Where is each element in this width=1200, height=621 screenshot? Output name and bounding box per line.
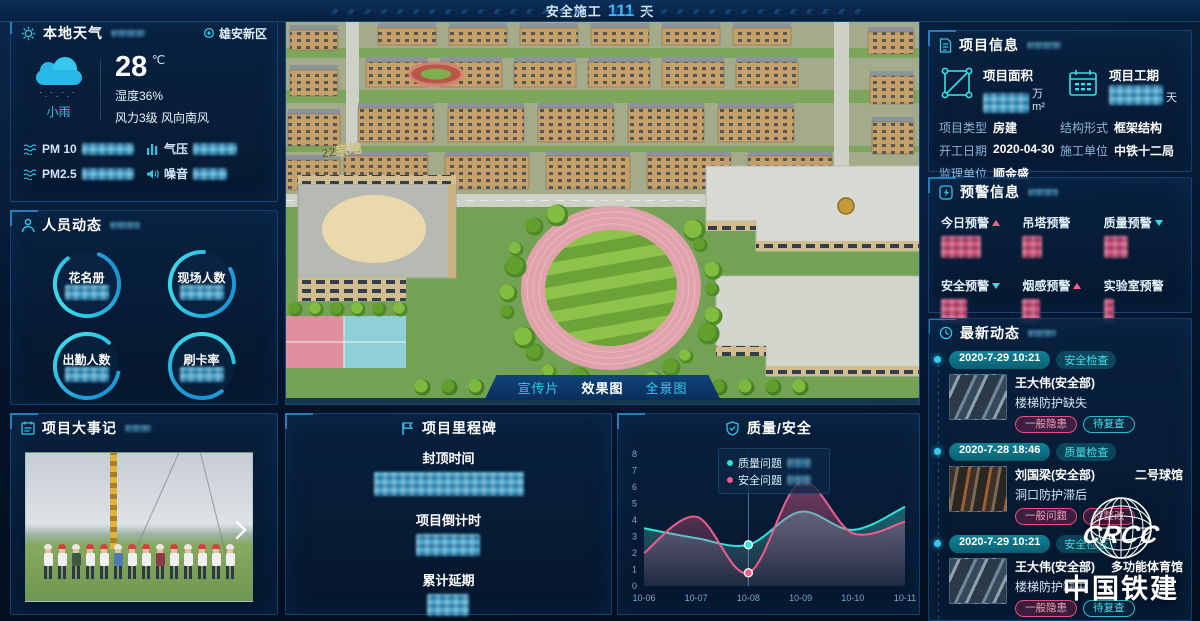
header-blurred-text (1028, 189, 1058, 196)
person-figure (155, 544, 165, 579)
warning-label: 今日预警 (941, 214, 989, 231)
stat-project-duration: 项目工期 天 (1065, 65, 1181, 113)
update-item[interactable]: 2020-7-29 10:21 安全检查 王大伟(安全部) 楼梯防护缺失 一般隐… (949, 351, 1183, 433)
panel-title: 项目里程碑 (422, 418, 497, 438)
svg-text:2: 2 (632, 548, 637, 558)
person-figure (197, 544, 207, 579)
update-site: 二号球馆 (1135, 466, 1183, 483)
update-date: 2020-7-29 10:21 (949, 535, 1050, 553)
metric-label: 噪音 (164, 165, 188, 182)
milestone-photo[interactable] (25, 452, 253, 602)
update-person: 刘国梁(安全部) (1015, 466, 1095, 483)
stat-value-redacted (1109, 85, 1163, 105)
milestone-panel: 项目里程碑 封顶时间 项目倒计时 累计延期 (285, 413, 612, 615)
chart-tooltip: 质量问题 安全问题 (718, 448, 830, 494)
legend-label-safety: 安全问题 (738, 472, 782, 488)
info-project-type: 项目类型 房建 (939, 119, 1060, 136)
promo-video-button[interactable]: 宣传片 (517, 378, 559, 397)
metric-noise: 噪音 (146, 165, 265, 182)
svg-text:3: 3 (632, 532, 637, 542)
warning-label: 烟感预警 (1022, 277, 1070, 294)
warning-today: 今日预警 (941, 214, 1016, 263)
warning-label: 实验室预警 (1104, 277, 1164, 294)
carousel-next-button[interactable] (232, 517, 250, 543)
personnel-ring: 出勤人数 (45, 329, 129, 403)
person-figure (127, 544, 137, 579)
update-tag: 待复查 (1083, 416, 1135, 433)
warning-quality: 质量预警 (1104, 214, 1179, 263)
svg-text:7: 7 (632, 466, 637, 476)
info-label: 结构形式 (1060, 119, 1108, 136)
legend-dot-quality (727, 460, 733, 466)
trend-up-icon (992, 220, 1000, 226)
personnel-ring: 刷卡率 (160, 329, 244, 403)
ring-label: 花名册 (45, 269, 129, 286)
crcc-acronym: CRCC (1080, 521, 1162, 550)
svg-text:10-08: 10-08 (737, 593, 760, 603)
stat-label: 项目面积 (983, 69, 1033, 83)
svg-text:4: 4 (632, 515, 637, 525)
warning-value-redacted (1022, 236, 1042, 258)
legend-dot-safety (727, 477, 733, 483)
metric-pm10: PM 10 (23, 140, 142, 157)
warning-value-redacted (941, 236, 981, 258)
header-blurred-text (110, 222, 140, 229)
panel-title: 本地天气 (43, 23, 103, 43)
warning-label: 安全预警 (941, 277, 989, 294)
trend-down-icon (992, 283, 1000, 289)
ring-label: 现场人数 (160, 269, 244, 286)
milestone-label: 累计延期 (422, 570, 474, 589)
milestone-label: 项目倒计时 (416, 510, 481, 529)
milestone-value-redacted (374, 472, 524, 496)
trend-down-icon (1155, 220, 1163, 226)
project-info-panel: 项目信息 项目面积 万m² (928, 30, 1192, 172)
stat-value-redacted (983, 93, 1029, 113)
person-figure (141, 544, 151, 579)
person-figure (183, 544, 193, 579)
weather-panel: 本地天气 雄安新区 · · · ·· · · 小雨 28 ℃ (10, 18, 278, 202)
area-measure-icon (939, 65, 975, 101)
temperature-unit: ℃ (152, 53, 165, 67)
info-contractor: 施工单位 中铁十二局 (1060, 142, 1181, 159)
person-figure (57, 544, 67, 579)
header-blurred-text (111, 30, 145, 37)
panel-title: 项目信息 (959, 35, 1019, 55)
svg-text:10-09: 10-09 (789, 593, 812, 603)
memo-icon (21, 421, 35, 435)
update-thumbnail (949, 466, 1007, 512)
person-figure (43, 544, 53, 579)
render-view-button[interactable]: 效果图 (581, 378, 623, 397)
view-switcher: 宣传片 效果图 全景图 (484, 375, 720, 400)
warning-label: 吊塔预警 (1022, 214, 1070, 231)
person-icon (21, 218, 35, 233)
update-person: 王大伟(安全部) (1015, 374, 1095, 391)
info-label: 项目类型 (939, 119, 987, 136)
info-value: 中铁十二局 (1114, 142, 1174, 159)
update-date: 2020-7-28 18:46 (949, 443, 1050, 461)
milestone-delay: 累计延期 (422, 570, 474, 621)
info-label: 施工单位 (1060, 142, 1108, 159)
person-figure (85, 544, 95, 579)
rain-cloud-icon (34, 61, 84, 89)
info-start-date: 开工日期 2020-04-30 (939, 142, 1060, 159)
metric-label: PM2.5 (42, 167, 77, 181)
temperature-value: 28 (115, 51, 147, 83)
milestone-value-redacted (427, 594, 469, 616)
tooltip-value-redacted (787, 458, 811, 468)
update-tag: 一般隐患 (1015, 416, 1077, 433)
svg-text:6: 6 (632, 482, 637, 492)
update-thumbnail (949, 374, 1007, 420)
info-label: 开工日期 (939, 142, 987, 159)
crane-cable (132, 452, 182, 558)
metric-value-redacted (193, 143, 237, 155)
group-photo-people (26, 544, 252, 579)
person-figure (169, 544, 179, 579)
document-icon (939, 38, 952, 53)
noise-speaker-icon (146, 168, 159, 180)
panel-title: 质量/安全 (747, 418, 812, 438)
ring-label: 出勤人数 (45, 351, 129, 368)
legend-label-quality: 质量问题 (738, 455, 782, 471)
pressure-icon (146, 143, 159, 155)
rain-drops-icon: · · · ·· · · (23, 91, 94, 99)
aerial-render-view[interactable]: 22宗地 宣传片 效果图 全景图 (285, 15, 920, 405)
alert-lightning-icon (939, 185, 953, 200)
top-header: 安全施工 111 天 (0, 0, 1200, 22)
update-category: 质量检查 (1056, 443, 1116, 461)
crane-mast (110, 453, 117, 549)
pm-icon (23, 143, 37, 155)
warning-label: 质量预警 (1104, 214, 1152, 231)
trend-up-icon (1073, 283, 1081, 289)
info-structure-type: 结构形式 框架结构 (1060, 119, 1181, 136)
panel-title: 项目大事记 (42, 418, 117, 438)
tooltip-value-redacted (787, 475, 811, 485)
person-figure (99, 544, 109, 579)
person-figure (225, 544, 235, 579)
svg-text:8: 8 (632, 449, 637, 459)
panel-title: 预警信息 (960, 182, 1020, 202)
update-issue: 楼梯防护缺失 (1015, 394, 1183, 411)
region-badge: 雄安新区 (203, 25, 267, 42)
svg-text:10-07: 10-07 (685, 593, 708, 603)
clock-icon (939, 326, 953, 340)
crane-cable (196, 452, 226, 555)
info-value: 2020-04-30 (993, 142, 1054, 159)
ring-label: 刷卡率 (160, 351, 244, 368)
sun-icon (21, 26, 36, 41)
header-blurred-text (1028, 330, 1056, 337)
weather-condition: · · · ·· · · 小雨 (23, 59, 101, 120)
ring-value-redacted (65, 285, 109, 300)
svg-text:10-06: 10-06 (632, 593, 655, 603)
location-pin-icon (203, 27, 215, 39)
shield-check-icon (725, 421, 740, 436)
header-decoration (330, 9, 590, 14)
milestone-countdown: 项目倒计时 (416, 510, 481, 561)
condition-label: 小雨 (23, 103, 94, 120)
quality-safety-panel: 质量/安全 01234567810-0610-0710-0810-0910-10… (617, 413, 920, 615)
panel-title: 人员动态 (42, 215, 102, 235)
ring-value-redacted (65, 367, 109, 382)
region-label: 雄安新区 (219, 25, 267, 42)
header-decoration (610, 9, 870, 14)
crcc-logo: CRCC 中国铁建 (1046, 495, 1196, 613)
humidity-text: 湿度36% (115, 87, 209, 104)
metric-value-redacted (193, 168, 227, 180)
weather-current: · · · ·· · · 小雨 28 ℃ 湿度36% 风力3级 风向南风 (11, 47, 277, 130)
person-figure (211, 544, 221, 579)
update-thumbnail (949, 558, 1007, 604)
metric-value-redacted (82, 143, 134, 155)
stat-label: 项目工期 (1109, 69, 1159, 83)
personnel-ring: 花名册 (45, 247, 129, 321)
pm-icon (23, 168, 37, 180)
stat-unit: 天 (1166, 89, 1177, 105)
svg-text:10-10: 10-10 (841, 593, 864, 603)
stat-unit: 万m² (1032, 85, 1055, 113)
ring-value-redacted (180, 367, 224, 382)
wind-text: 风力3级 风向南风 (115, 109, 209, 126)
project-events-panel: 项目大事记 (10, 413, 278, 615)
update-category: 安全检查 (1056, 351, 1116, 369)
info-value: 框架结构 (1114, 119, 1162, 136)
calendar-icon (1065, 65, 1101, 101)
personnel-ring: 现场人数 (160, 247, 244, 321)
warning-value-redacted (1104, 236, 1128, 258)
metric-value-redacted (82, 168, 134, 180)
svg-text:0: 0 (632, 581, 637, 591)
milestone-topping-time: 封顶时间 (374, 448, 524, 501)
header-blurred-text (1027, 42, 1061, 49)
svg-text:10-11: 10-11 (894, 593, 916, 603)
info-value: 房建 (993, 119, 1017, 136)
metric-pressure: 气压 (146, 140, 265, 157)
metric-pm25: PM2.5 (23, 165, 142, 182)
dashboard: 安全施工 111 天 本地天气 雄安新区 (0, 0, 1200, 621)
metric-label: 气压 (164, 140, 188, 157)
ring-value-redacted (180, 285, 224, 300)
panel-title: 最新动态 (960, 323, 1020, 343)
warning-crane: 吊塔预警 (1022, 214, 1097, 263)
svg-text:1: 1 (632, 565, 637, 575)
milestone-label: 封顶时间 (374, 448, 524, 467)
crcc-name: 中国铁建 (1046, 567, 1196, 606)
panorama-button[interactable]: 全景图 (646, 378, 688, 397)
milestone-value-redacted (416, 534, 480, 556)
warnings-panel: 预警信息 今日预警 吊塔预警 质量预警 安全预警 烟感预警 (928, 177, 1192, 313)
svg-text:5: 5 (632, 499, 637, 509)
flag-icon (400, 421, 415, 436)
update-date: 2020-7-29 10:21 (949, 351, 1050, 369)
person-figure (113, 544, 123, 579)
header-blurred-text (125, 425, 151, 432)
metric-label: PM 10 (42, 142, 77, 156)
stat-project-area: 项目面积 万m² (939, 65, 1055, 113)
personnel-panel: 人员动态 花名册 现场人数 出勤人数 (10, 210, 278, 405)
person-figure (71, 544, 81, 579)
